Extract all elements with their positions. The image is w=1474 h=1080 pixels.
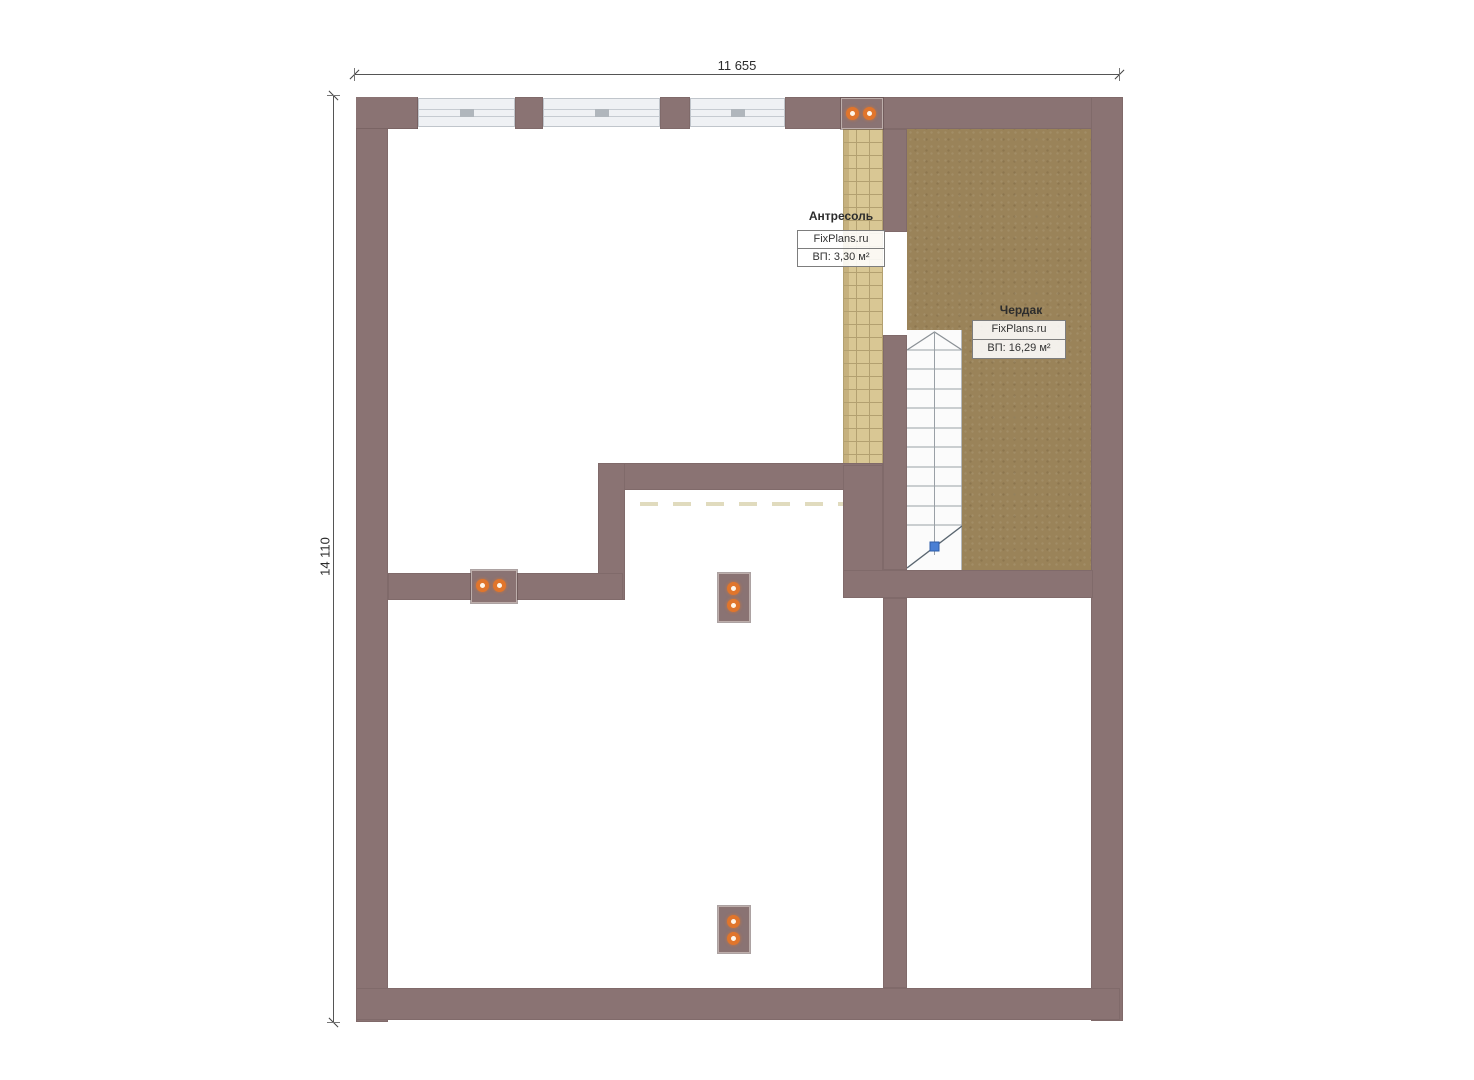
wall-top-pillar — [515, 97, 543, 129]
room-area-label: ВП: 16,29 м² — [972, 339, 1066, 359]
mezzanine-floor-hatch — [843, 129, 883, 465]
wall-outer-bottom — [356, 988, 1120, 1020]
flue-dot-icon — [727, 932, 740, 945]
wall-top-pillar — [660, 97, 690, 129]
staircase-drawing — [907, 330, 962, 570]
dimension-label-height: 14 110 — [318, 517, 333, 597]
attic-floor-hatch — [962, 330, 1091, 570]
room-name-mezzanine: Антресоль — [788, 209, 894, 223]
wall-outer-top — [785, 97, 1122, 129]
wall-corner-top-left — [356, 97, 418, 129]
flue-dot-icon — [493, 579, 506, 592]
window-vent-mark — [731, 109, 745, 117]
chimney-block — [718, 906, 750, 953]
wall-mezzanine-attic-lower — [883, 335, 907, 570]
dimension-extension — [1119, 68, 1120, 81]
room-name-attic: Чердак — [968, 303, 1074, 317]
attic-floor-hatch — [907, 129, 1091, 330]
window — [418, 98, 515, 127]
flue-dot-icon — [727, 915, 740, 928]
wall-right-room-divider — [883, 598, 907, 988]
stair-direction-marker-icon — [930, 542, 939, 551]
window — [543, 98, 660, 127]
window — [690, 98, 785, 127]
staircase — [907, 330, 962, 570]
chimney-block — [718, 573, 750, 622]
dimension-extension — [327, 1022, 340, 1023]
flue-dot-icon — [476, 579, 489, 592]
chimney-block — [471, 570, 517, 603]
wall-interior-horizontal-upper — [598, 463, 883, 490]
dimension-extension — [327, 95, 340, 96]
room-area-label: ВП: 3,30 м² — [797, 248, 885, 267]
floor-plan-canvas: Антресоль FixPlans.ru ВП: 3,30 м² Чердак… — [0, 0, 1474, 1080]
flue-dot-icon — [863, 107, 876, 120]
window-vent-mark — [595, 109, 609, 117]
window-vent-mark — [460, 109, 474, 117]
dimension-line-top — [354, 74, 1120, 75]
dimension-extension — [354, 68, 355, 81]
flue-dot-icon — [727, 599, 740, 612]
dimension-line-left — [333, 95, 334, 1023]
flue-dot-icon — [846, 107, 859, 120]
watermark-badge: FixPlans.ru — [797, 230, 885, 249]
wall-outer-left — [356, 97, 388, 1022]
chimney-block — [841, 98, 883, 129]
flue-dot-icon — [727, 582, 740, 595]
beam-dashed-line — [640, 502, 855, 506]
wall-outer-right — [1091, 97, 1123, 1021]
wall-below-attic — [843, 570, 1093, 598]
watermark-badge: FixPlans.ru — [972, 320, 1066, 340]
dimension-label-width: 11 655 — [677, 58, 797, 73]
